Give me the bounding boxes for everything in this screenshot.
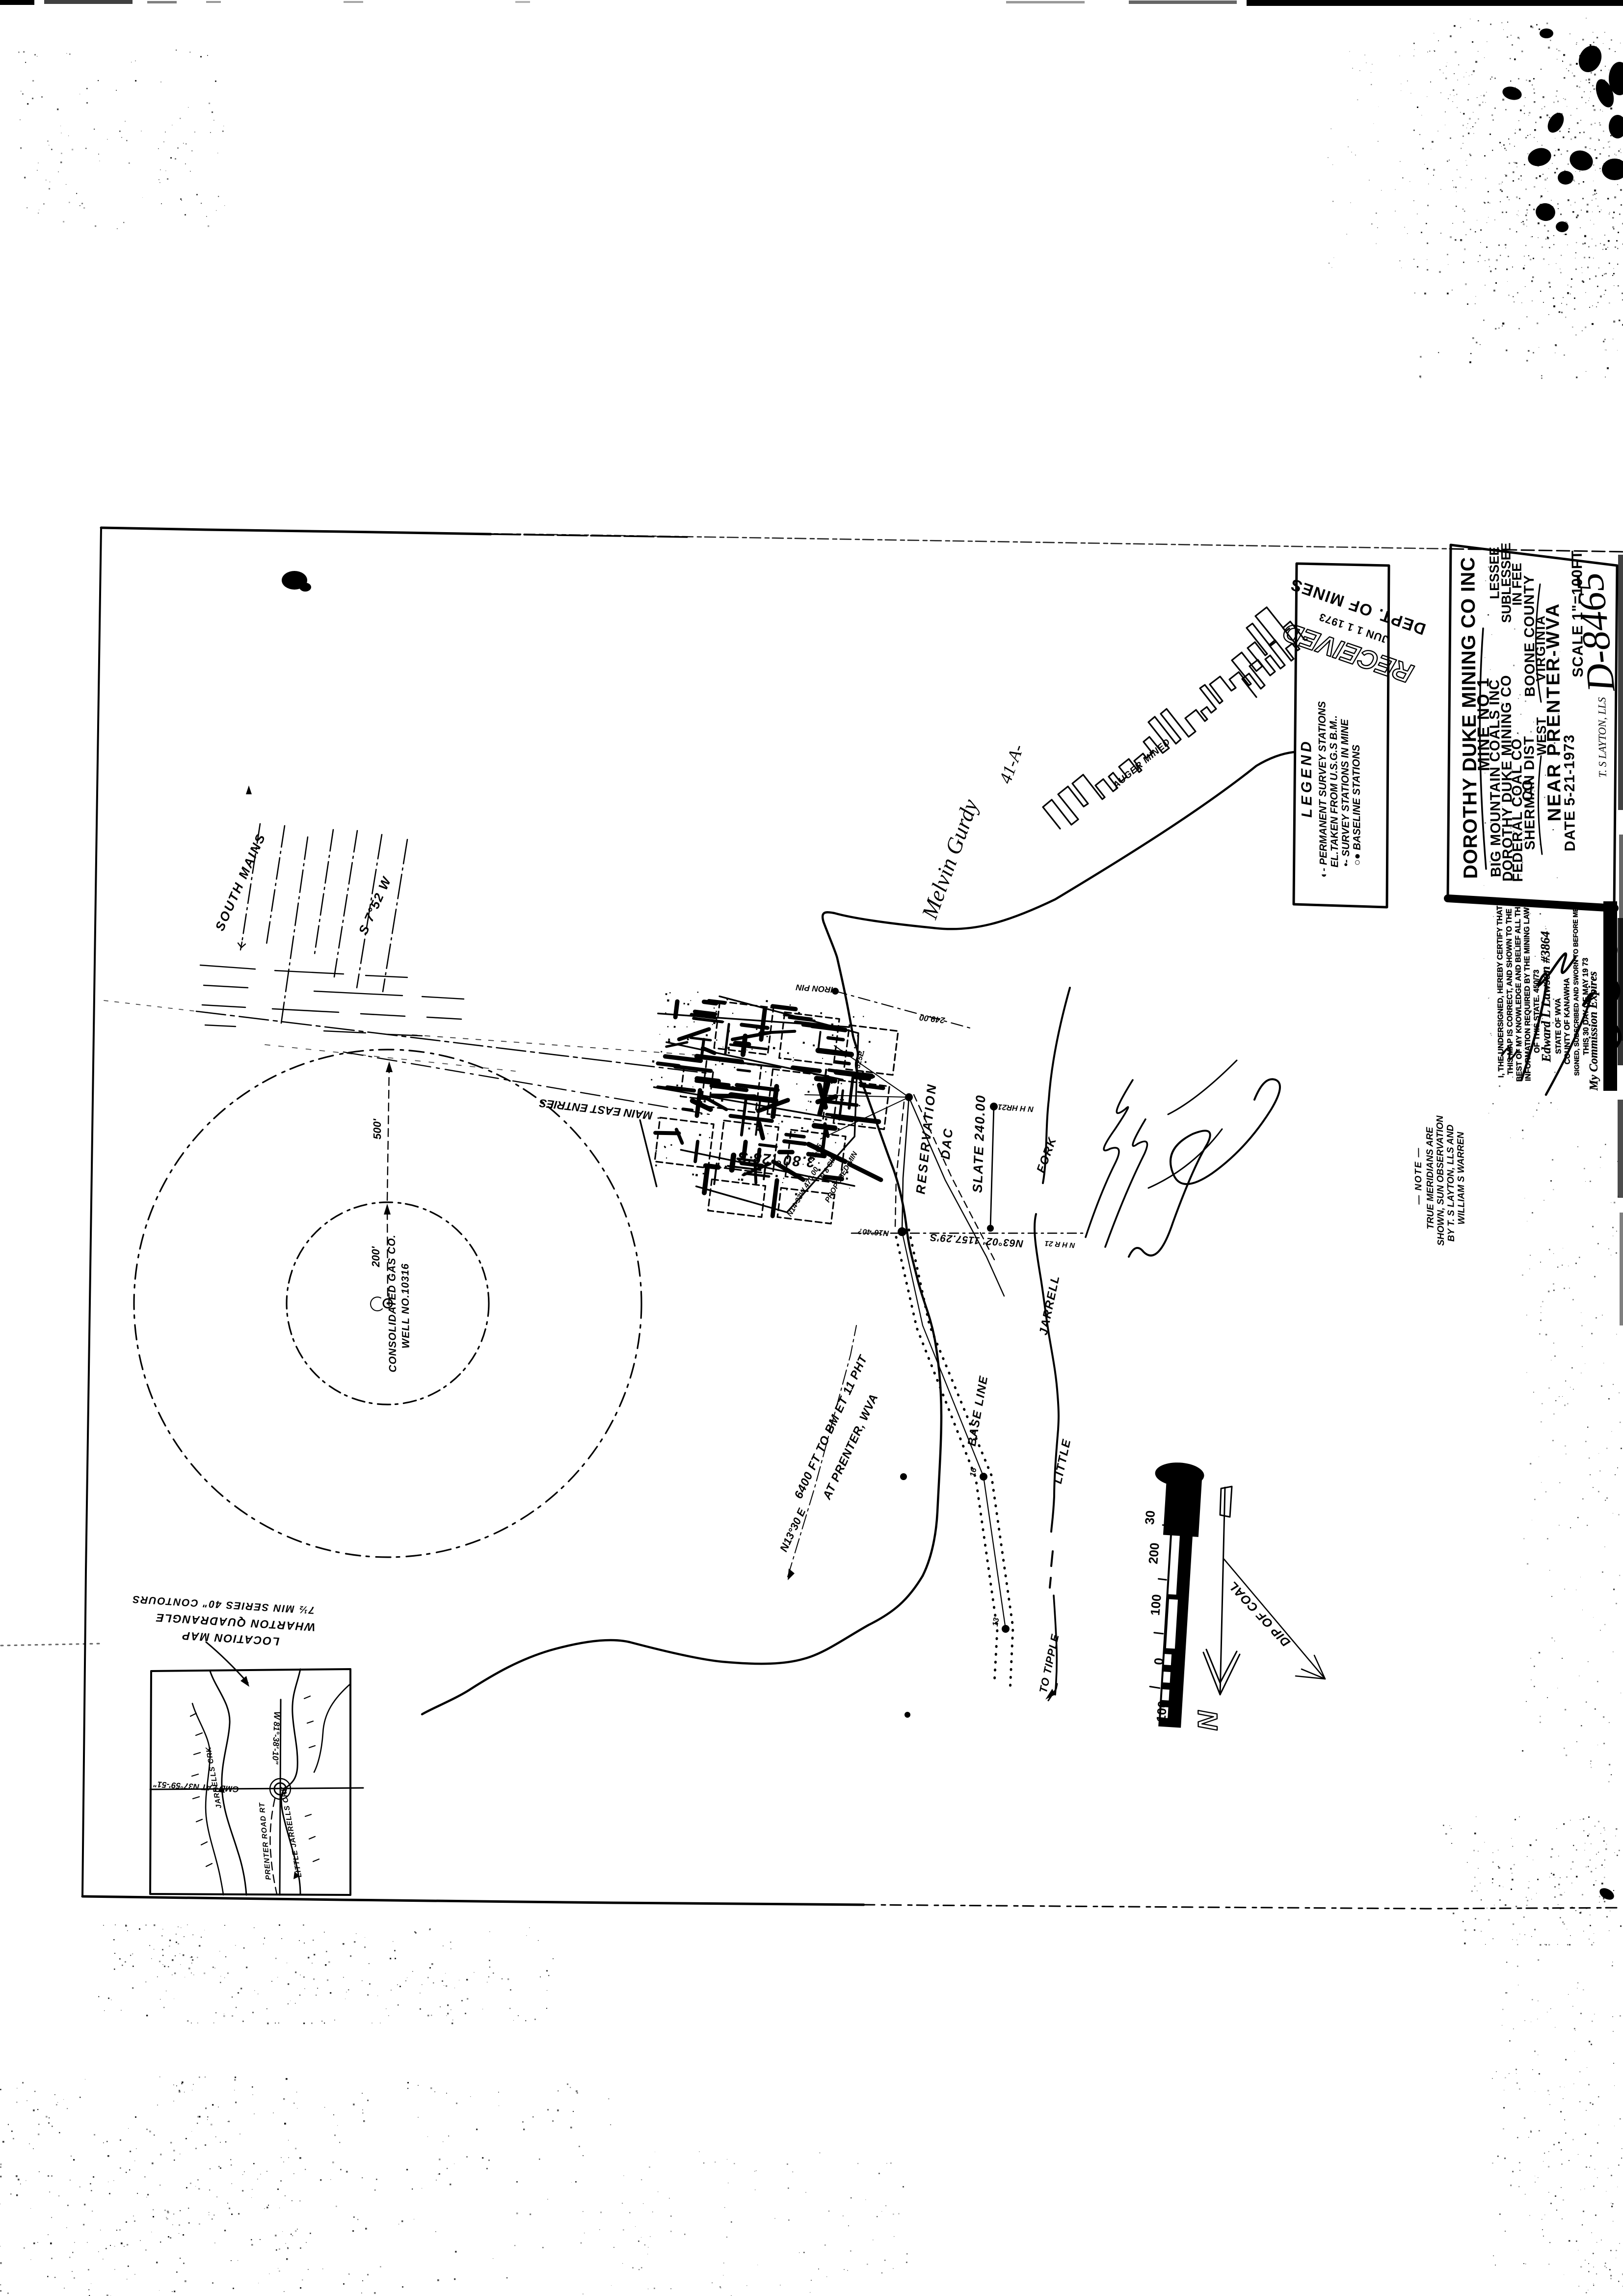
svg-text:My Commission Expires: My Commission Expires: [1587, 972, 1600, 1091]
svg-text:T. S LAYTON, LLS: T. S LAYTON, LLS: [1596, 697, 1608, 778]
svg-text:EL.TAKEN FROM U.S.G.S B.M..: EL.TAKEN FROM U.S.G.S B.M..: [1328, 715, 1341, 867]
svg-text:LEGEND: LEGEND: [1298, 738, 1315, 817]
svg-text:13: 13: [991, 1617, 1001, 1627]
svg-text:SHOWN, SUN OBSERVATION: SHOWN, SUN OBSERVATION: [1435, 1115, 1446, 1246]
svg-text:100: 100: [1153, 1700, 1170, 1723]
svg-text:N: N: [1192, 1710, 1223, 1731]
svg-text:TRUE MERIDIANS ARE: TRUE MERIDIANS ARE: [1425, 1126, 1436, 1229]
svg-text:WILLIAM S WARREN: WILLIAM S WARREN: [1456, 1131, 1467, 1224]
svg-text:CONSOLIDATED GAS CO.: CONSOLIDATED GAS CO.: [386, 1234, 399, 1372]
svg-text:◐- PERMANENT SURVEY STATIONS: ◐- PERMANENT SURVEY STATIONS: [1316, 701, 1329, 877]
svg-text:30: 30: [1142, 1510, 1158, 1525]
svg-text:BY T. S LAYTON, LLS AND: BY T. S LAYTON, LLS AND: [1445, 1124, 1457, 1242]
svg-text:W 81°-38'-10": W 81°-38'-10": [270, 1711, 282, 1765]
svg-text:INFORMATION REQUIRED BY THE MI: INFORMATION REQUIRED BY THE MINING LAWS: [1522, 902, 1532, 1081]
svg-text:500': 500': [371, 1118, 383, 1139]
svg-text:0: 0: [1151, 1657, 1166, 1666]
svg-text:200': 200': [370, 1246, 382, 1268]
svg-text:Edward L Lawson #3864: Edward L Lawson #3864: [1538, 931, 1553, 1062]
svg-text:•- SURVEY STATIONS IN MINE: •- SURVEY STATIONS IN MINE: [1339, 719, 1352, 866]
svg-text:STATE OF WVA: STATE OF WVA: [1554, 998, 1563, 1054]
svg-text:SIGNED, SUBSCRIBED AND SWORN T: SIGNED, SUBSCRIBED AND SWORN TO BEFORE M…: [1572, 908, 1581, 1076]
svg-text:○● BASELINE STATIONS: ○● BASELINE STATIONS: [1351, 745, 1363, 865]
svg-text:— NOTE —: — NOTE —: [1413, 1147, 1424, 1205]
svg-text:200: 200: [1145, 1542, 1162, 1565]
svg-text:WELL NO.10316: WELL NO.10316: [399, 1263, 412, 1349]
svg-text:16: 16: [969, 1467, 979, 1478]
svg-text:DATE 5-21-1973: DATE 5-21-1973: [1561, 734, 1578, 852]
svg-text:100: 100: [1147, 1594, 1164, 1616]
